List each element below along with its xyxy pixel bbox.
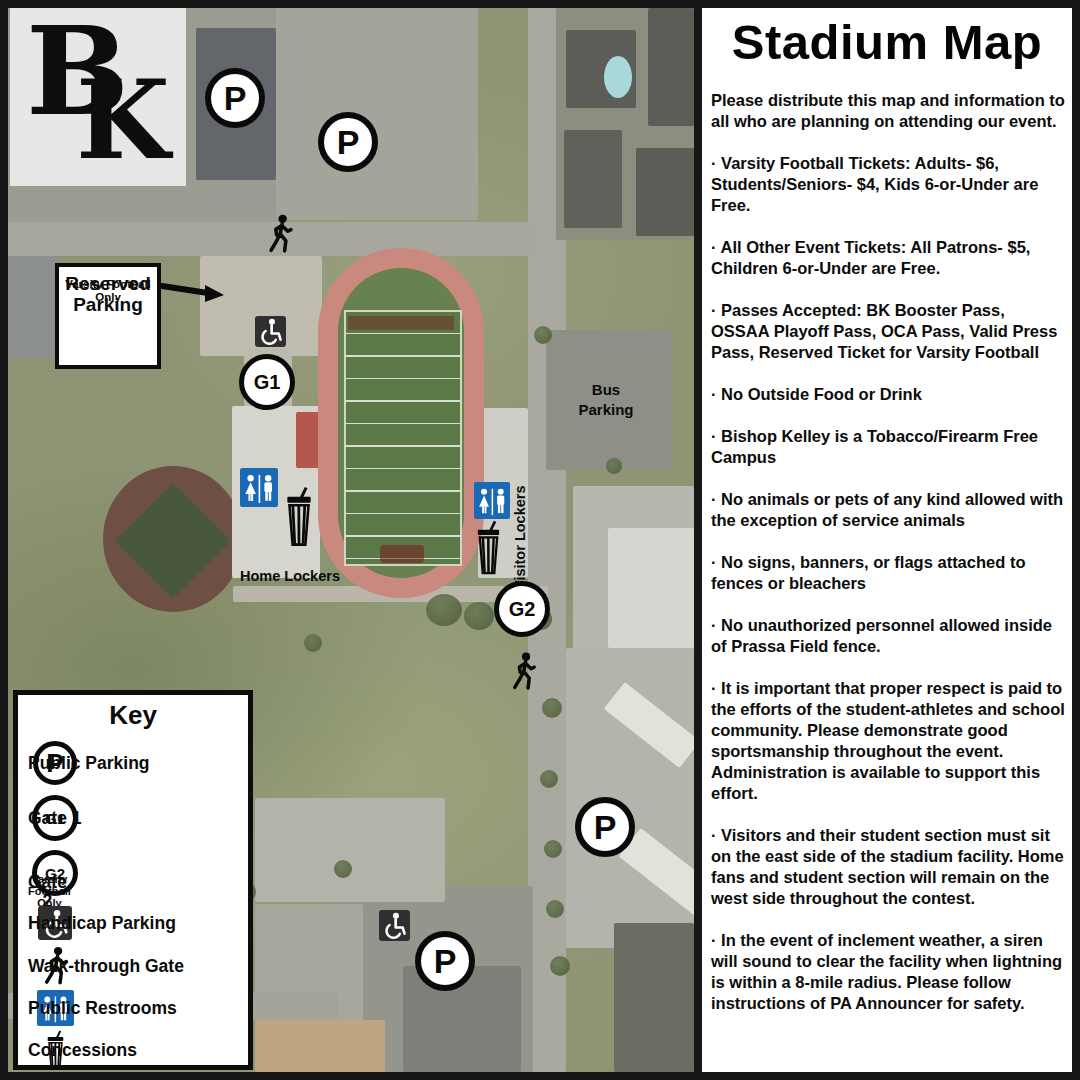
marker-letter: P [434,942,457,981]
building-southeast [614,923,694,1072]
pool [604,56,632,98]
visitor-lockers-label: Visitor Lockers [512,470,528,590]
key-item-restrooms: Public Restrooms [28,989,240,1027]
logo-letter-k: K [76,66,170,174]
tree [334,860,352,878]
tree [542,698,562,718]
key-legend: Key P Public Parking G1 Gate 1 G2 Gate 2… [13,690,253,1070]
panel-paragraph: · Passes Accepted: BK Booster Pass, OSSA… [711,300,1065,363]
panel-paragraph: · No animals or pets of any kind allowed… [711,489,1065,531]
handicap-parking-icon-south [379,910,410,941]
key-title: Key [18,700,248,731]
tree [546,900,564,918]
key-label: Public Parking [28,754,150,773]
key-item-gate2: G2 Gate 2 Varsity Football Only [28,847,240,899]
tree [540,770,558,788]
pavement-north [276,8,478,220]
panel-paragraph: Please distribute this map and informati… [711,90,1065,132]
public-parking-marker-south: P [415,931,475,991]
bk-logo: B K [10,8,186,186]
reserved-parking-sub: Varsity Football Only [59,278,157,304]
campus-satellite-map: B K P P Reserved Parking Varsity Footbal… [8,8,694,1072]
marker-letter: P [594,808,617,847]
page-title: Stadium Map [702,14,1072,70]
gate2-marker: G2 [494,581,550,637]
marker-letter: P [337,123,360,162]
walkthrough-gate-icon-south [510,652,537,691]
end-zone [348,316,454,330]
west-edge-lot [8,238,56,358]
dirt-patch [255,1020,385,1072]
west-buildings [255,798,445,902]
reserved-parking-arrow [160,278,226,304]
key-item-walk-gate: Walk-through Gate [28,945,240,987]
key-label: Concessions [28,1041,137,1060]
panel-paragraph: · No signs, banners, or flags attached t… [711,552,1065,594]
gate1-marker: G1 [239,354,295,410]
school-building-east-roof [608,528,694,648]
concessions-icon-home [282,486,316,548]
key-item-public-parking: P Public Parking [28,741,240,785]
panel-paragraph: · All Other Event Tickets: All Patrons- … [711,237,1065,279]
marker-letter: G2 [509,598,536,621]
marker-letter: P [224,79,247,118]
bleachers-west-roof [296,412,320,468]
marker-letter: G1 [254,371,281,394]
key-item-handicap: Handicap Parking [28,905,240,941]
public-parking-marker-east: P [575,797,635,857]
restrooms-icon-home [240,468,278,507]
key-label: Gate 1 [28,809,82,828]
key-label: Public Restrooms [28,999,177,1018]
panel-paragraph: · Bishop Kelley is a Tobacco/Firearm Fre… [711,426,1065,468]
walkthrough-gate-icon-north [266,214,294,254]
bus-parking-label: Bus Parking [570,380,642,420]
public-parking-marker-northwest: P [205,68,265,128]
key-item-gate1: G1 Gate 1 [28,795,240,841]
apartment-building [648,8,694,126]
panel-paragraph: · Varsity Football Tickets: Adults- $6, … [711,153,1065,216]
restrooms-icon-visitor [474,482,510,519]
tree [544,840,562,858]
key-label: Handicap Parking [28,914,176,933]
tree [464,602,494,630]
apartment-building [564,130,622,228]
apartment-building [636,148,694,236]
home-lockers-label: Home Lockers [230,568,350,584]
tree [426,594,462,626]
panel-paragraph: · In the event of inclement weather, a s… [711,930,1065,1014]
stadium-map-flyer: B K P P Reserved Parking Varsity Footbal… [0,0,1080,1080]
reserved-parking-sign: Reserved Parking Varsity Football Only [55,263,161,369]
info-text: Please distribute this map and informati… [711,90,1065,1035]
panel-paragraph: · No Outside Food or Drink [711,384,1065,405]
panel-paragraph: · No unauthorized personnel allowed insi… [711,615,1065,657]
tree [606,458,622,474]
panel-paragraph: · It is important that proper respect is… [711,678,1065,804]
public-parking-marker-north: P [318,112,378,172]
key-item-concessions: Concessions [28,1029,240,1071]
tree [534,326,552,344]
tree [304,634,322,652]
info-panel: Stadium Map Please distribute this map a… [702,8,1072,1072]
field-logo [380,545,424,563]
key-label: Walk-through Gate [28,957,184,976]
key-label-sub: Varsity Football Only [28,873,71,909]
football-field [344,310,462,566]
concessions-icon-visitor [473,520,504,576]
handicap-parking-icon-gate1 [255,316,286,347]
panel-paragraph: · Visitors and their student section mus… [711,825,1065,909]
tree [550,956,570,976]
